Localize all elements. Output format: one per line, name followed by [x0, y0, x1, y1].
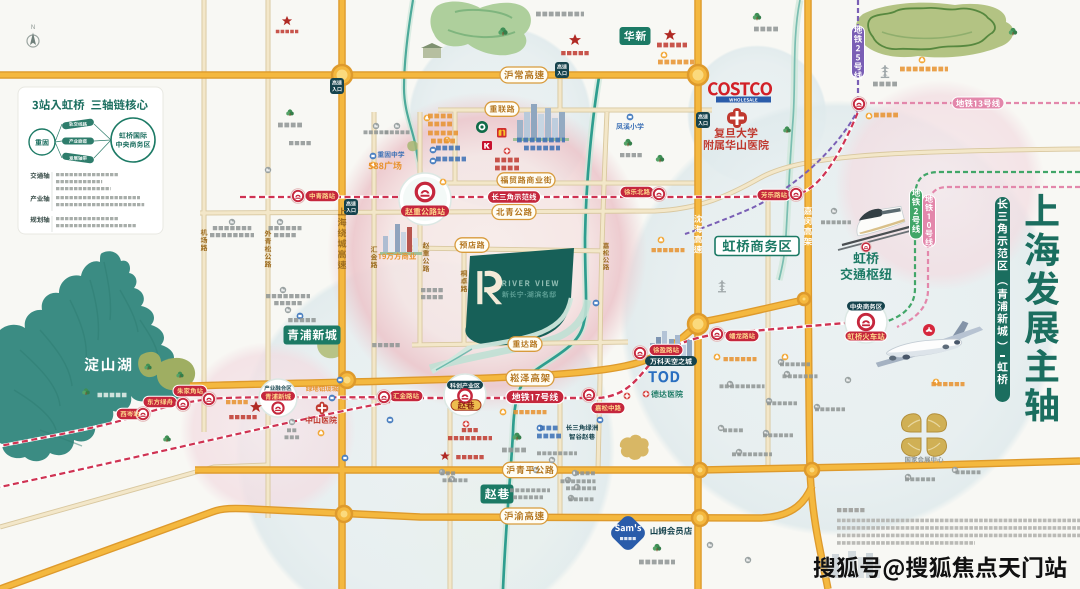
- svg-text:N: N: [31, 25, 35, 31]
